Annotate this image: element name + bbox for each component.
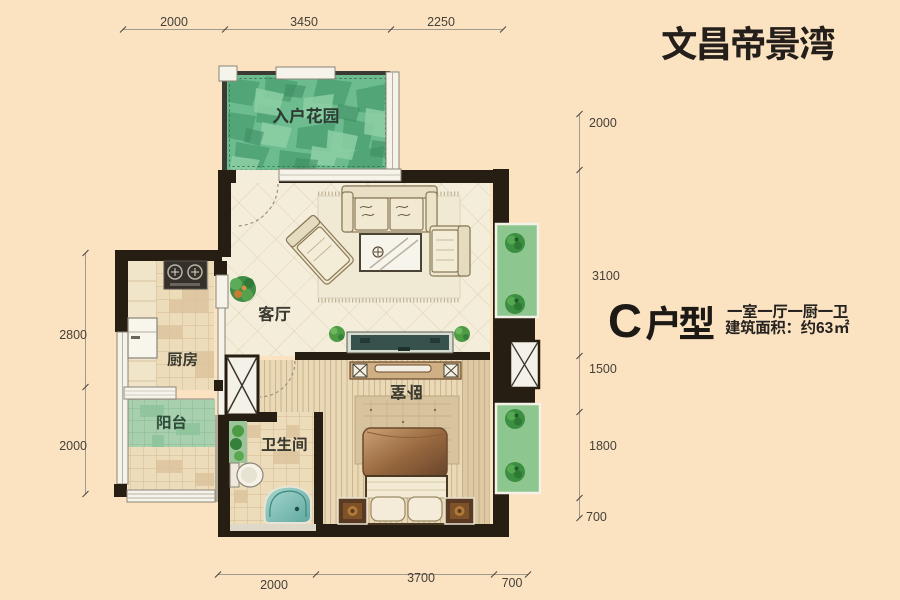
svg-text:63: 63 [816, 320, 834, 337]
svg-text:2000: 2000 [260, 578, 288, 592]
svg-text:2800: 2800 [59, 328, 87, 342]
svg-text:1800: 1800 [589, 439, 617, 453]
svg-text:2000: 2000 [160, 15, 188, 29]
svg-text:2000: 2000 [589, 116, 617, 130]
svg-text:3450: 3450 [290, 15, 318, 29]
svg-text:3700: 3700 [407, 571, 435, 585]
svg-text:3100: 3100 [592, 269, 620, 283]
svg-text:1500: 1500 [589, 362, 617, 376]
svg-text:C: C [608, 294, 642, 347]
svg-text:700: 700 [502, 576, 523, 590]
svg-text:700: 700 [586, 510, 607, 524]
svg-text:2250: 2250 [427, 15, 455, 29]
svg-text:2000: 2000 [59, 439, 87, 453]
